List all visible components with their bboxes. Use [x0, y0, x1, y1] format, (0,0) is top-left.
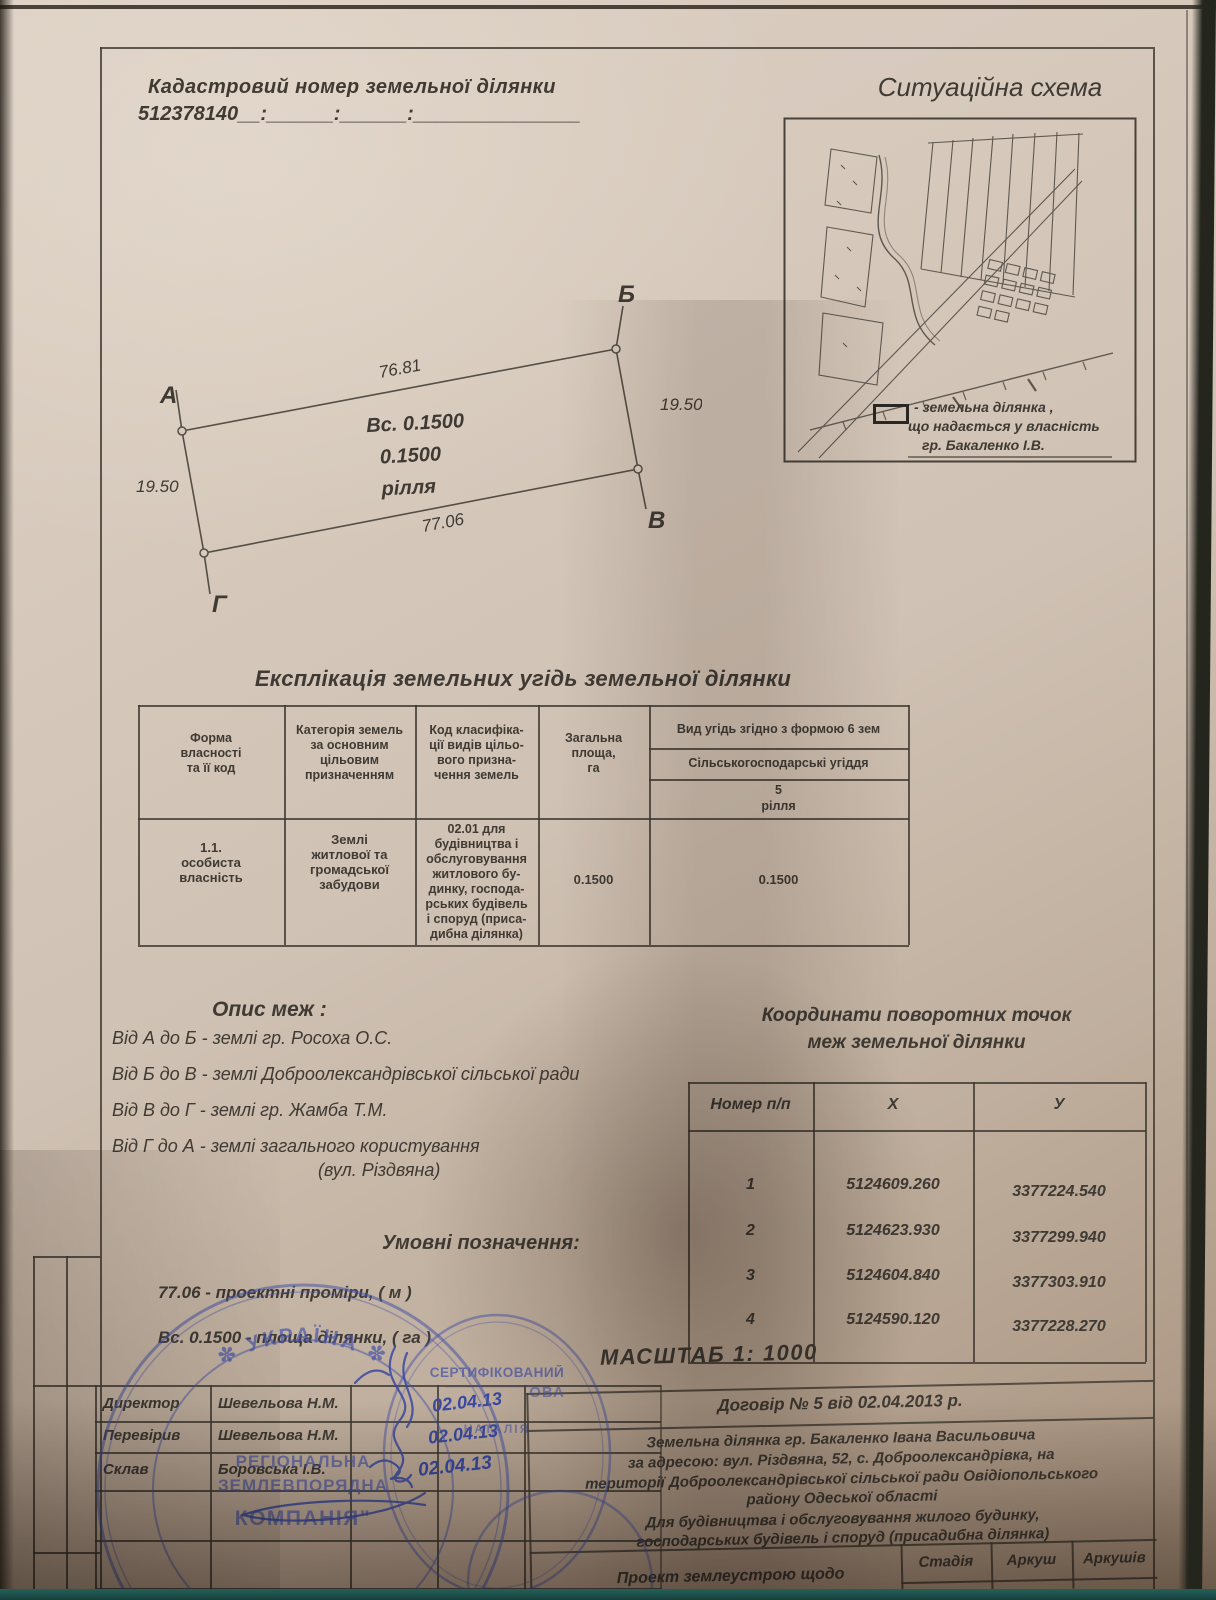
scheme-legend-line1: - земельна ділянка , [914, 399, 1054, 415]
row-form: 1.1. особиста власність [140, 840, 282, 885]
bottom-teal-bar [0, 1589, 1216, 1600]
coords-row-y: 3377303.910 [975, 1274, 1143, 1292]
opis-line: Від А до Б - землі гр. Росоха О.С. [112, 1028, 392, 1049]
opis-line-street: (вул. Різдвяна) [318, 1160, 440, 1181]
photo-right-edge [1178, 0, 1216, 1600]
table-line [138, 818, 909, 820]
corner-label-b: Б [618, 281, 635, 308]
svg-text:✼ УКРАЇНА ✼: ✼ УКРАЇНА ✼ [214, 1324, 392, 1370]
stamp-country-arc: ✼ УКРАЇНА ✼ [214, 1324, 392, 1370]
table-line [908, 705, 910, 945]
explication-title: Експлікація земельних угідь земельної ді… [138, 666, 908, 692]
stamp-org-line1: РЕГІОНАЛЬНА [236, 1452, 371, 1471]
table-line [138, 945, 909, 947]
row-code: 02.01 для будівництва і обслуговування ж… [417, 822, 536, 942]
table-line [901, 1577, 1157, 1584]
coords-title: Координати поворотних точок меж земельно… [688, 1002, 1145, 1056]
dimension-bottom: 77.06 [420, 509, 466, 536]
coords-row-num: 2 [690, 1222, 811, 1240]
dimension-top: 76.81 [377, 355, 422, 381]
certified-engineer-stamp [384, 1315, 652, 1600]
col-header-category: Категорія земель за основним цільовим пр… [286, 723, 413, 783]
opis-title: Опис меж : [212, 998, 327, 1022]
situational-scheme-title: Ситуаційна схема [840, 72, 1140, 103]
stamp-org-line2: ЗЕМЛЕВПОРЯДНА [218, 1476, 388, 1495]
stub-line [33, 1256, 35, 1590]
scheme-legend-underline [908, 456, 1112, 458]
opis-line: Від Б до В - землі Доброолександрівської… [112, 1064, 579, 1085]
col-header-kind-type: рілля [651, 799, 906, 814]
coords-row-num: 1 [690, 1176, 811, 1194]
coords-row-x: 5124590.120 [815, 1311, 971, 1329]
plot-diagram: А Б В Г 76.81 19.50 77.06 19.50 Вс. 0.15… [118, 278, 702, 612]
table-line [1145, 1082, 1147, 1362]
corner-label-v: В [648, 507, 665, 534]
cadastral-number-label: Кадастровий номер земельної ділянки [148, 76, 556, 99]
table-line [688, 1130, 1146, 1132]
sheet-header: Аркуш [991, 1551, 1072, 1570]
sheets-header: Аркушів [1072, 1549, 1157, 1568]
coords-row-num: 3 [690, 1267, 811, 1285]
col-header-form: Форма власності та її код [140, 731, 282, 776]
stamp-cert-name: НАТАЛІЯ [464, 1422, 531, 1436]
photo-left-edge [0, 0, 14, 1600]
dimension-left: 19.50 [136, 477, 179, 496]
coords-row-x: 5124609.260 [815, 1176, 971, 1194]
corner-label-a: А [159, 382, 177, 409]
frame-inner-right-line [1153, 47, 1155, 1590]
table-line [138, 705, 909, 707]
col-header-kind-sub: Сільськогосподарські угіддя [651, 756, 906, 771]
col-header-area: Загальна площа, га [540, 731, 647, 776]
coords-row-x: 5124604.840 [815, 1267, 971, 1285]
scanned-land-document: Кадастровий номер земельної ділянки 5123… [0, 0, 1216, 1600]
plot-area-code: Вс. 0.1500 [366, 410, 465, 437]
col-header-kind: Вид угідь згідно з формою 6 зем [651, 722, 906, 737]
coords-row-y: 3377299.940 [975, 1229, 1143, 1247]
scheme-legend-line3: гр. Бакаленко І.В. [922, 437, 1045, 453]
stamp-cert-fragment: ОВА [529, 1384, 565, 1401]
table-line [688, 1082, 1146, 1084]
coords-row-x: 5124623.930 [815, 1222, 971, 1240]
col-header-code: Код класифіка- ції видів цільо- вого при… [417, 723, 536, 783]
coords-col-x: X [815, 1096, 971, 1114]
row-kind: 0.1500 [651, 872, 906, 887]
col-header-kind-num: 5 [651, 783, 906, 798]
scheme-legend-line2: що надається у власність [908, 418, 1100, 434]
coords-row-y: 3377228.270 [975, 1318, 1143, 1336]
plot-land-use: рілля [380, 476, 437, 501]
stamp-second-impression [468, 1491, 652, 1600]
table-line [649, 779, 909, 781]
plot-area-value: 0.1500 [379, 443, 441, 468]
legend-plot-swatch [873, 404, 909, 424]
corner-label-g: Г [212, 591, 228, 612]
table-line [649, 705, 651, 945]
coords-row-y: 3377224.540 [975, 1183, 1143, 1201]
coords-row-num: 4 [690, 1311, 811, 1329]
stamp-cert-label: СЕРТИФІКОВАНИЙ [430, 1365, 565, 1380]
row-category: Землі житлової та громадської забудови [286, 832, 413, 892]
cadastral-number-value: 512378140__:______:______:______________… [138, 103, 581, 126]
photo-top-edge-line [0, 5, 1216, 9]
frame-top-line [100, 47, 1153, 49]
row-area: 0.1500 [540, 872, 647, 887]
opis-line: Від В до Г - землі гр. Жамба Т.М. [112, 1100, 387, 1121]
dimension-right: 19.50 [660, 395, 702, 414]
coords-col-y: У [975, 1096, 1143, 1114]
table-line [649, 748, 909, 750]
coords-col-num: Номер п/п [690, 1096, 811, 1114]
stage-header: Стадія [901, 1552, 991, 1571]
stamps-and-signatures: ✼ УКРАЇНА ✼ РЕГІОНАЛЬНА ЗЕМЛЕВПОРЯДНА КО… [55, 1235, 685, 1600]
opis-line: Від Г до А - землі загального користуван… [112, 1136, 480, 1157]
